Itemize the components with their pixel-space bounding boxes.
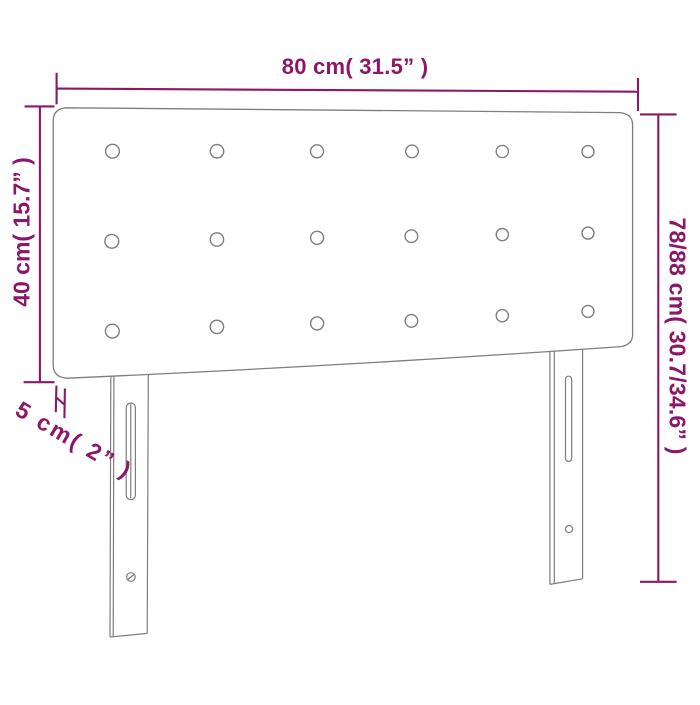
svg-text:40 cm( 15.7” ): 40 cm( 15.7” ) [9,157,35,307]
svg-text:80 cm( 31.5” ): 80 cm( 31.5” ) [282,54,429,79]
svg-text:78/88 cm( 30.7/34.6” ): 78/88 cm( 30.7/34.6” ) [664,217,690,454]
